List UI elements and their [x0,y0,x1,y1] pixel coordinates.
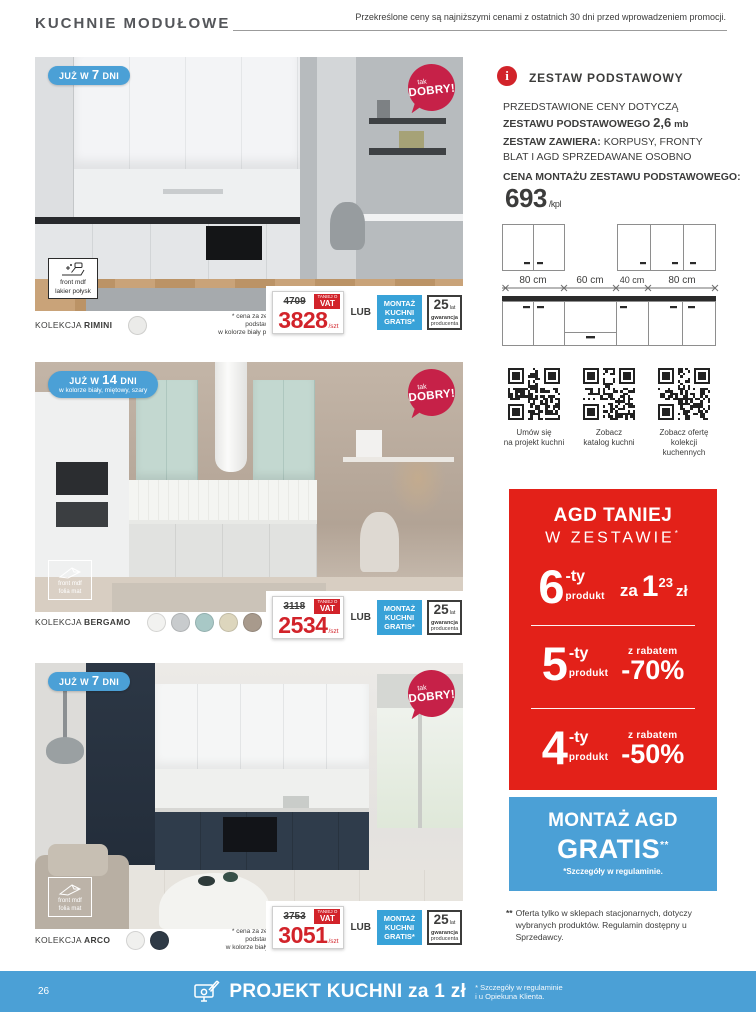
projekt-kuchni-title: PROJEKT KUCHNI za 1 zł [229,981,466,1003]
promo-divider [531,625,695,626]
film-icon [58,564,82,580]
page-title: KUCHNIE MODUŁOWE [35,15,230,32]
collection-name: KOLEKCJA RIMINI [35,320,112,330]
collection-row: KOLEKCJA RIMINI * cena za zestaw podstaw… [35,313,281,337]
kitchen-photo-rimini: JUŻ W 7 DNI tak DOBRY! front mdf lakier … [35,57,463,311]
monitor-pen-icon [193,980,220,1004]
color-swatches [126,931,169,950]
qr-label: Umów sięna projekt kuchni [504,428,564,448]
price-box: 3753 TANIEJ OVAT 3051/szt [272,906,344,950]
current-price: 3051 [278,925,327,945]
warranty-badge: 25lat gwarancja producenta [427,295,462,330]
montaz-agd-gratis-banner: MONTAŻ AGD GRATIS** *Szczegóły w regulam… [509,797,717,891]
warranty-badge: 25lat gwarancja producenta [427,910,462,945]
dim-label: 80 cm [519,275,546,286]
current-price: 3828 [278,310,327,330]
promo-divider [531,708,695,709]
montaz-kuchni-gratis-badge: MONTAŻ KUCHNI GRATIS* [377,600,422,635]
price-cluster: 3753 TANIEJ OVAT 3051/szt LUB MONTAŻ KUC… [266,901,463,954]
qr-item-kolekcje: Zobacz ofertękolekcji kuchennych [649,368,719,458]
promo-title: AGD TANIEJ [509,505,717,527]
promo-subtitle: W ZESTAWIE* [509,529,717,547]
color-swatch [243,613,262,632]
dim-label: 40 cm [620,275,645,285]
qr-label: Zobaczkatalog kuchni [583,428,634,448]
color-swatches [147,613,286,632]
product-card-arco: JUŻ W 7 DNI tak DOBRY! front mdf folia m… [35,663,463,960]
price-cluster: 4709 TANIEJ OVAT 3828/szt LUB MONTAŻ KUC… [266,286,463,339]
lub-label: LUB [350,307,371,318]
qr-section: Umów sięna projekt kuchni Zobaczkatalog … [499,368,719,458]
dim-label: 80 cm [668,275,695,286]
price-cluster: 3118 TANIEJ OVAT 2534/szt LUB MONTAŻ KUC… [266,591,463,644]
availability-badge: JUŻ W 7 DNI [48,672,130,691]
product-card-rimini: JUŻ W 7 DNI tak DOBRY! front mdf lakier … [35,57,463,345]
qr-code-projekt-kuchni [508,368,560,420]
color-swatch [171,613,190,632]
price-box: 4709 TANIEJ OVAT 3828/szt [272,291,344,335]
qr-code-katalog-kuchni [583,368,635,420]
color-swatch [147,613,166,632]
material-badge: front mdf lakier połysk [48,258,98,299]
lub-label: LUB [350,922,371,933]
info-icon: i [497,66,517,86]
collection-row: KOLEKCJA BERGAMO * cena za zestaw podsta… [35,602,281,642]
catalog-page: KUCHNIE MODUŁOWE Przekreślone ceny są na… [0,0,756,1015]
gratis-label: GRATIS** [509,832,717,863]
footnote: ** Oferta tylko w sklepach stacjonarnych… [506,907,718,943]
price-box: 3118 TANIEJ OVAT 2534/szt [272,596,344,640]
montaz-kuchni-gratis-badge: MONTAŻ KUCHNI GRATIS* [377,295,422,330]
collection-name: KOLEKCJA BERGAMO [35,617,131,627]
kitchen-photo-arco: JUŻ W 7 DNI tak DOBRY! front mdf folia m… [35,663,463,929]
promo-row-4th: 4 -typrodukt z rabatem-50% [509,719,717,777]
header-rule [233,30,727,31]
agd-taniej-promo: AGD TANIEJ W ZESTAWIE* 6 -typrodukt za 1… [509,489,717,790]
badge-text: JUŻ W [59,677,89,687]
footer-bar: 26 PROJEKT KUCHNI za 1 zł * Szczegóły w … [0,971,756,1012]
montaz-kuchni-gratis-badge: MONTAŻ KUCHNI GRATIS* [377,910,422,945]
qr-code-kolekcje-kuchenne [658,368,710,420]
zestaw-price-paragraph: PRZEDSTAWIONE CENY DOTYCZĄ ZESTAWU PODST… [503,100,688,132]
promo-row-5th: 5 -typrodukt z rabatem-70% [509,635,717,693]
collection-row: KOLEKCJA ARCO * cena za zestaw podstawow… [35,928,281,952]
material-badge: front mdf folia mat [48,877,92,917]
collection-name: KOLEKCJA ARCO [35,935,110,945]
cabinet-diagram: 80 cm 60 cm 40 cm 80 cm [500,222,720,350]
brush-icon [61,262,85,278]
warranty-badge: 25lat gwarancja producenta [427,600,462,635]
film-icon [58,881,82,897]
promo-row-6th: 6 -typrodukt za 1 23 zł [509,561,717,613]
badge-text: JUŻ W [69,376,99,386]
zestaw-contents-paragraph: ZESTAW ZAWIERA: KORPUSY, FRONTY BLAT I A… [503,135,703,165]
availability-badge: JUŻ W 7 DNI [48,66,130,85]
color-swatch [126,931,145,950]
product-card-bergamo: JUŻ W 14 DNI w kolorze biały, miętowy, s… [35,362,463,650]
zestaw-podstawowy-heading: ZESTAW PODSTAWOWY [529,71,683,85]
montage-price: 693/kpl [503,183,561,214]
color-swatch [128,316,147,335]
qr-label: Zobacz ofertękolekcji kuchennych [649,428,719,458]
tak-dobry-badge: tak DOBRY! [406,367,458,419]
price-disclaimer: Przekreślone ceny są najniższymi cenami … [355,12,726,22]
badge-text: JUŻ W [59,71,89,81]
color-swatches [128,316,147,335]
color-swatch [219,613,238,632]
dim-label: 60 cm [576,275,603,286]
color-swatch [195,613,214,632]
color-swatch [150,931,169,950]
lub-label: LUB [350,612,371,623]
footer-note: * Szczegóły w regulaminie i u Opiekuna K… [475,983,563,1001]
material-badge: front mdf folia mat [48,560,92,600]
qr-item-projekt: Umów sięna projekt kuchni [499,368,569,458]
availability-badge: JUŻ W 14 DNI w kolorze biały, miętowy, s… [48,371,158,398]
current-price: 2534 [278,615,327,635]
qr-item-katalog: Zobaczkatalog kuchni [574,368,644,458]
montage-price-label: CENA MONTAŻU ZESTAWU PODSTAWOWEGO: [503,171,741,183]
kitchen-photo-bergamo: JUŻ W 14 DNI w kolorze biały, miętowy, s… [35,362,463,612]
